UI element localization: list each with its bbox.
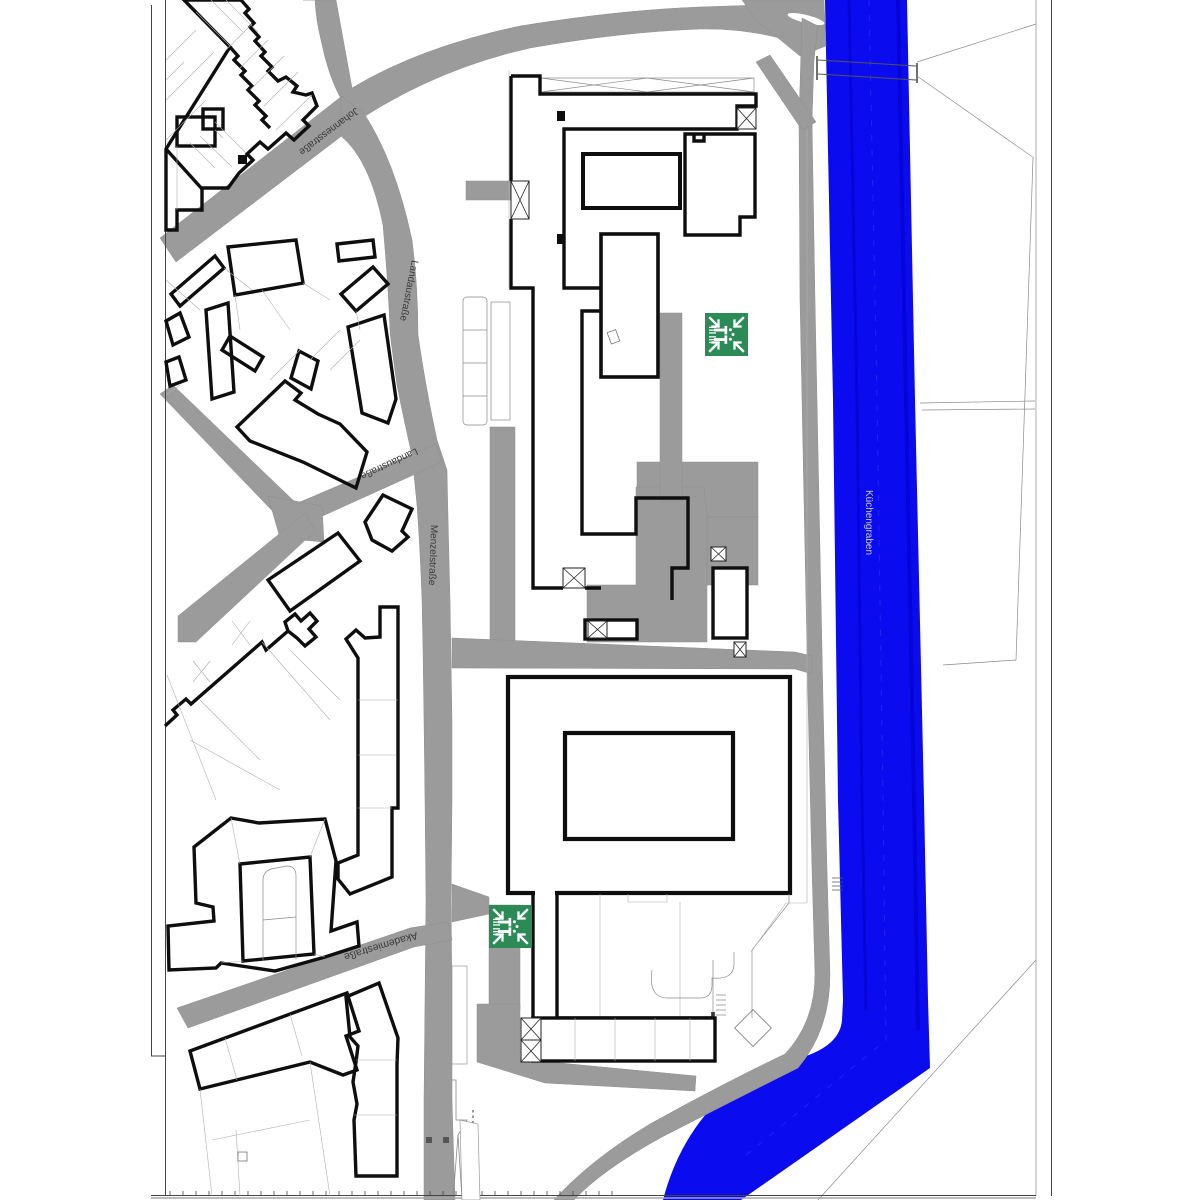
svg-text:Küchengraben: Küchengraben [863,490,874,555]
svg-text:Menzelstraße: Menzelstraße [426,525,439,586]
